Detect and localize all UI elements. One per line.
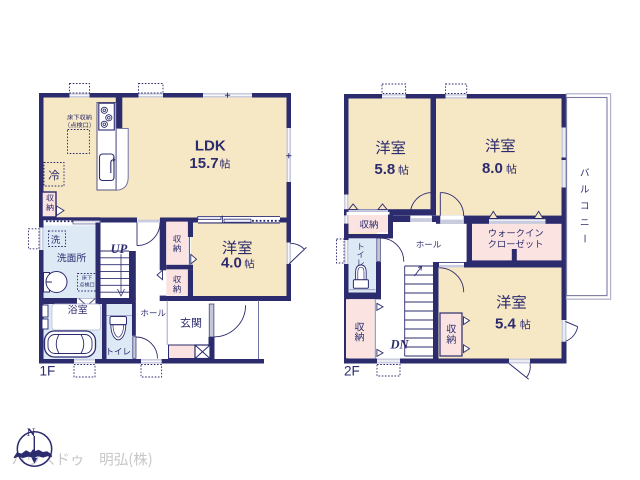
svg-text:2F: 2F <box>344 364 360 379</box>
svg-text:DN: DN <box>389 338 409 352</box>
svg-text:1F: 1F <box>40 364 56 379</box>
svg-text:N: N <box>27 427 36 439</box>
svg-text:8.0: 8.0 <box>482 160 503 177</box>
svg-text:UP: UP <box>111 242 128 256</box>
svg-text:4.0: 4.0 <box>221 255 242 272</box>
svg-text:5.8: 5.8 <box>374 161 395 178</box>
svg-text:LDK: LDK <box>195 137 226 154</box>
svg-text:15.7: 15.7 <box>189 155 218 172</box>
svg-text:5.4: 5.4 <box>495 316 517 333</box>
